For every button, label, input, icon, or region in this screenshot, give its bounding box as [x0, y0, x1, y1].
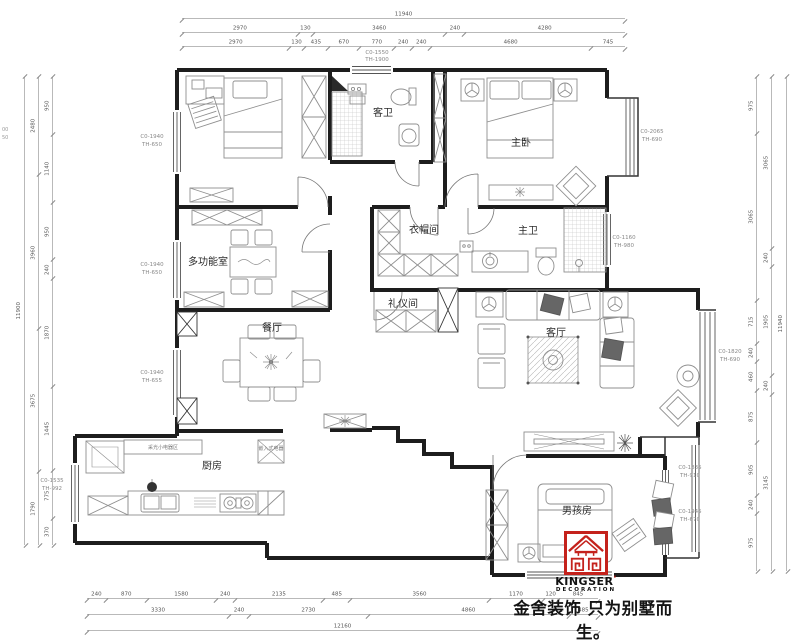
label-built-in-note: 嵌入式电器 [258, 445, 283, 452]
label-living: 客厅 [546, 326, 566, 339]
floorplan-drawing: 客卫 主卧 衣帽间 主卫 多功能室 餐厅 礼仪间 客厅 厨房 男孩房 采光小电器… [0, 0, 800, 640]
win-right-a2: TH-690 [641, 137, 662, 143]
label-boys-room: 男孩房 [562, 504, 592, 517]
label-dining: 餐厅 [262, 321, 282, 334]
win-right-d2: TH-910 [679, 473, 700, 479]
label-cloakroom: 衣帽间 [409, 223, 439, 236]
win-left-a1: C0-1940 [140, 134, 164, 140]
label-master-bedroom: 主卧 [511, 136, 531, 149]
label-etiquette: 礼仪间 [388, 297, 418, 310]
win-right-b2: TH-980 [613, 243, 634, 249]
kingser-brand-sub: DECORATION [536, 587, 636, 593]
win-top-1: C0-1550 [365, 50, 389, 56]
label-kitchen: 厨房 [202, 459, 222, 472]
label-guest-bath: 客卫 [373, 106, 393, 119]
room-multi-function [184, 230, 328, 307]
dim-col-right-2: 306524019052403145 [763, 77, 772, 571]
win-right-c2: TH-690 [719, 357, 740, 363]
dim-row-top-3: 29701304356707702402404680745 [182, 38, 625, 47]
slogan-text: 金舍装饰 只为别墅而生。 [498, 595, 688, 643]
dim-col-right-3: 11940 [778, 77, 787, 571]
win-right-a1: C0-2065 [640, 129, 664, 135]
room-bedroom [186, 76, 326, 225]
room-cloakroom [378, 210, 458, 276]
dim-row-top-1: 11940 [182, 10, 625, 19]
win-left-b1: C0-1940 [140, 262, 164, 268]
dim-col-left-3: 950114095024018701445775370 [44, 77, 53, 545]
edge-label-2: 50 [2, 135, 8, 141]
win-right-e1: C0-1945 [678, 509, 702, 515]
label-kitchen-counter-note: 采光小电器区 [148, 444, 178, 451]
label-master-bath: 主卫 [518, 225, 538, 237]
dim-row-top-2: 297013034602404280 [182, 24, 625, 33]
dim-col-left-1: 11900 [16, 77, 25, 545]
dim-col-left-2: 2480396036751790 [30, 77, 39, 545]
edge-label-1: 00 [2, 127, 8, 133]
win-top-2: TH-1900 [364, 57, 389, 63]
room-living [476, 290, 699, 452]
dim-col-right-1: 9753065715240460875905240975 [748, 77, 757, 571]
room-etiquette [324, 310, 436, 428]
kingser-logo-icon [564, 531, 608, 575]
room-kitchen [86, 440, 284, 515]
win-right-d1: C0-1835 [678, 465, 702, 471]
label-multi-function: 多功能室 [188, 255, 228, 268]
win-left-c1: C0-1940 [140, 370, 164, 376]
brand-mark: ' [614, 575, 617, 585]
room-master-bath [460, 208, 606, 275]
win-right-c1: C0-1820 [718, 349, 742, 355]
win-left-b2: TH-650 [141, 270, 162, 276]
win-right-b1: C0-1160 [612, 235, 636, 241]
room-dining [223, 325, 320, 401]
win-left-a2: TH-650 [141, 142, 162, 148]
win-left-c2: TH-655 [141, 378, 162, 384]
floorplan-canvas: { "plan": { "rooms": { "guest_bath": "客卫… [0, 0, 800, 640]
win-right-e2: TH-670 [679, 517, 700, 523]
